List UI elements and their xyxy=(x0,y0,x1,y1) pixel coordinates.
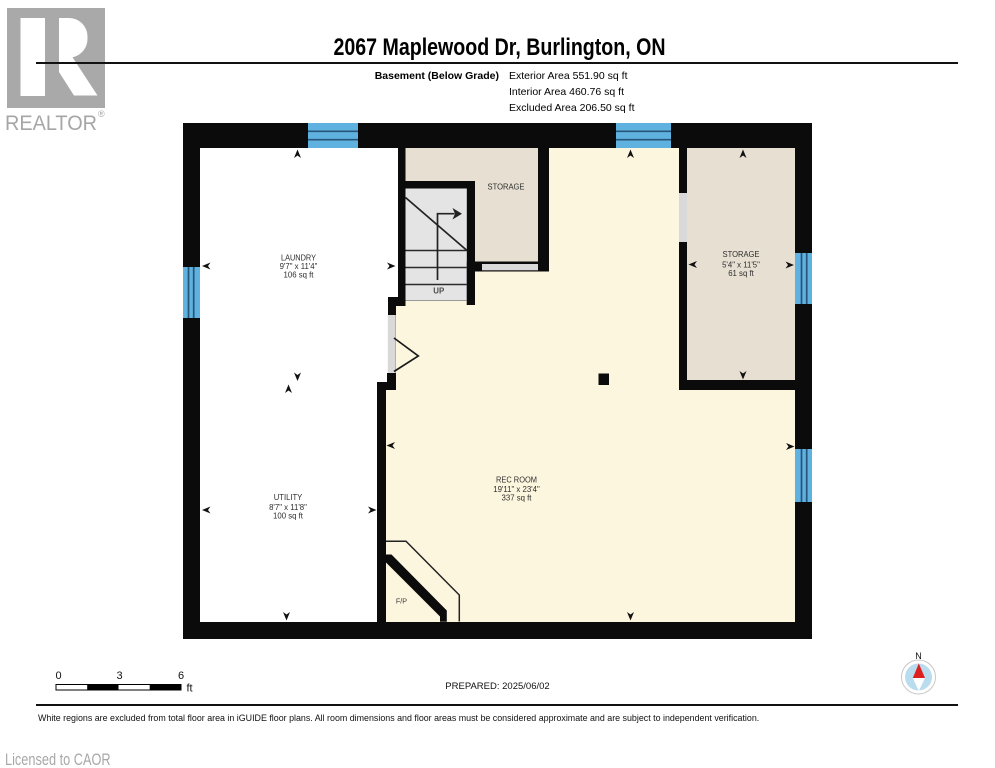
svg-text:STORAGE: STORAGE xyxy=(723,249,760,259)
svg-text:61 sq ft: 61 sq ft xyxy=(728,269,754,278)
svg-text:F/P: F/P xyxy=(396,597,407,606)
svg-text:337 sq ft: 337 sq ft xyxy=(502,493,533,502)
svg-text:UTILITY: UTILITY xyxy=(274,492,303,502)
svg-text:REC ROOM: REC ROOM xyxy=(496,475,537,485)
svg-text:STORAGE: STORAGE xyxy=(488,182,525,192)
svg-text:LAUNDRY: LAUNDRY xyxy=(281,253,316,263)
svg-text:106 sq ft: 106 sq ft xyxy=(284,270,315,279)
svg-text:100 sq ft: 100 sq ft xyxy=(273,511,304,520)
svg-text:UP: UP xyxy=(433,287,445,296)
